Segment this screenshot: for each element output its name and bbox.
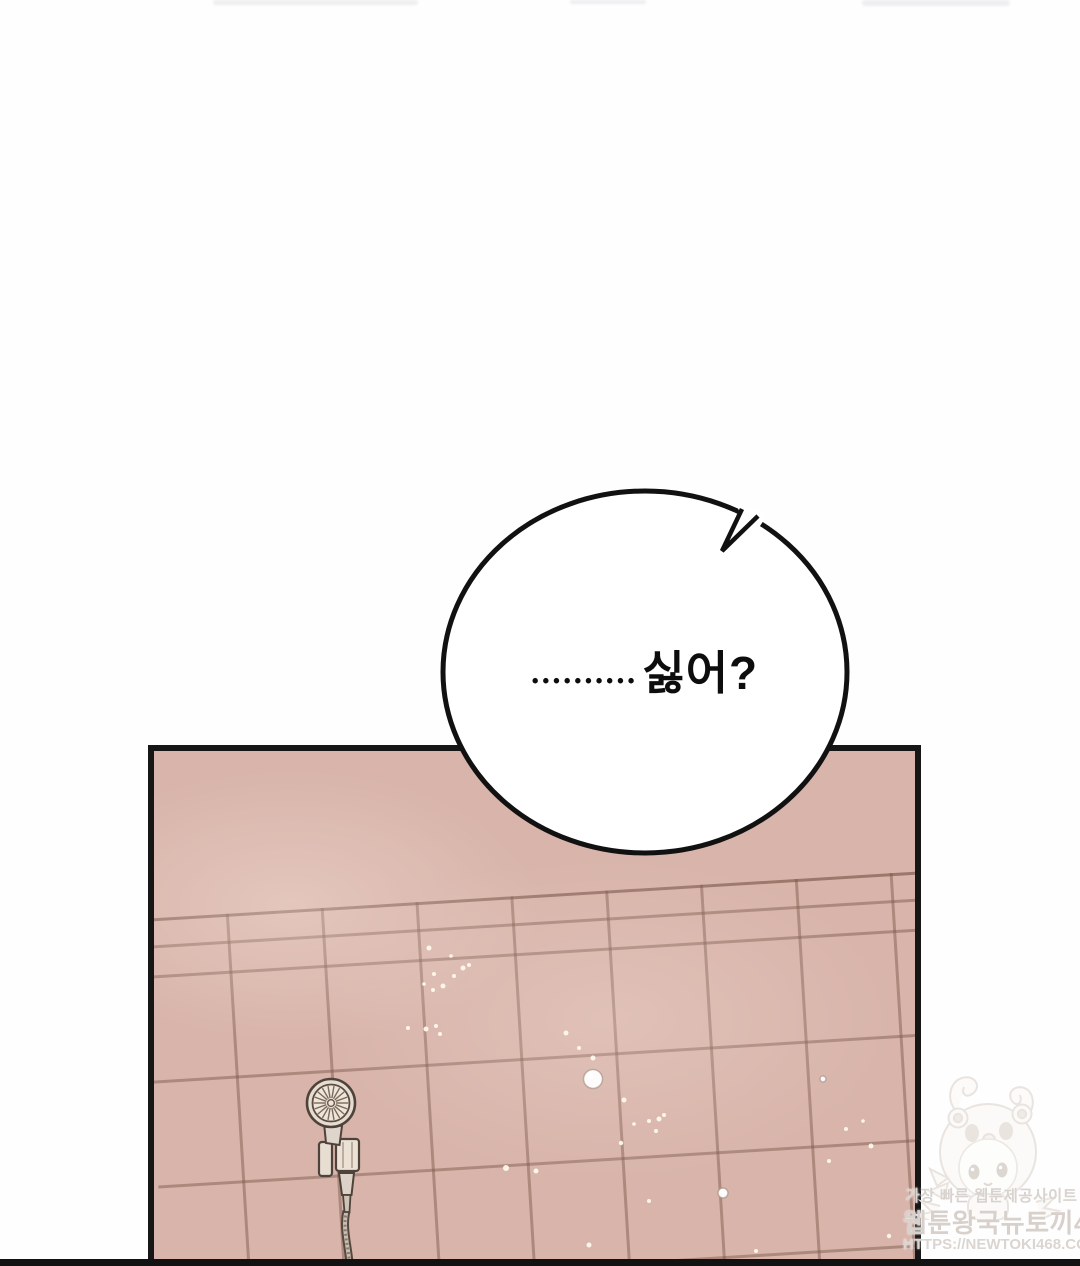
speech-bubble-text: •••••••••• 싫어?	[455, 622, 835, 718]
hose-connector	[339, 1173, 354, 1195]
watermark-url: HTTPS://NEWTOKI468.COM	[903, 1236, 1080, 1253]
cutoff-text-smudge	[570, 0, 646, 4]
webtoon-page: •••••••••• 싫어?	[0, 0, 1080, 1266]
shower-head-illustration	[281, 1059, 421, 1266]
water-sparkles	[154, 751, 917, 1266]
shower-bracket	[319, 1142, 332, 1176]
comic-panel	[148, 745, 921, 1266]
dialogue-text: 싫어?	[642, 637, 758, 703]
ellipsis-dots: ••••••••••	[532, 671, 639, 693]
cutoff-text-smudge	[213, 0, 418, 5]
cutoff-text-smudge	[862, 0, 1010, 6]
site-watermark: 가장 빠른 웹툰제공사이트 웹툰왕국뉴토끼468 HTTPS://NEWTOKI…	[903, 1058, 1080, 1266]
speech-bubble-tail	[722, 509, 758, 551]
watermark-sitename: 웹툰왕국뉴토끼468	[903, 1203, 1080, 1240]
